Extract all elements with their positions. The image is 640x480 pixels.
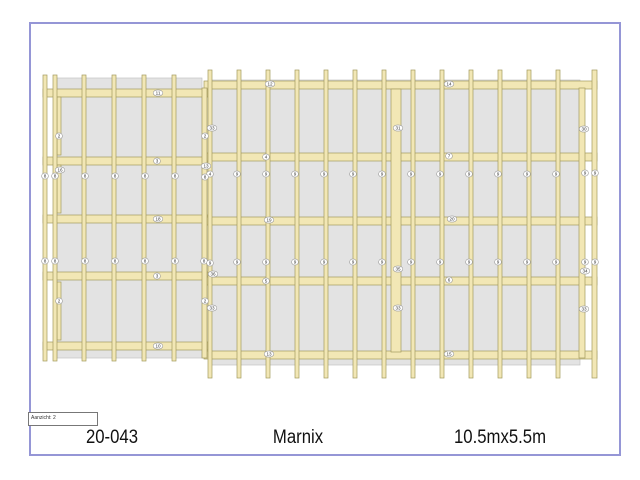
stud [353, 70, 357, 378]
rail [43, 89, 208, 97]
part-label: 9 [323, 260, 326, 265]
part-label: 4 [265, 155, 268, 160]
view-label: Aanzicht: 2 [31, 415, 56, 421]
part-label: 9 [410, 172, 413, 177]
part-label: 8 [203, 259, 206, 264]
part-label: 9 [236, 172, 239, 177]
part-label: 9 [468, 172, 471, 177]
part-label: 9 [294, 172, 297, 177]
part-label: 16 [57, 168, 63, 173]
part-label: 9 [497, 172, 500, 177]
part-label: 33 [209, 306, 215, 311]
part-label: 5 [265, 279, 268, 284]
stud [112, 75, 116, 361]
timber-frame-drawing: 1131831021628888888888883321348893623312… [0, 0, 640, 480]
stud [411, 70, 415, 378]
stud [295, 70, 299, 378]
part-label: 13 [266, 352, 272, 357]
part-label: 8 [174, 259, 177, 264]
stud [324, 70, 328, 378]
part-label: 9 [352, 260, 355, 265]
part-label: 19 [266, 218, 272, 223]
part-label: 15 [446, 352, 452, 357]
project-name: Marnix [254, 427, 342, 449]
part-label: 8 [144, 174, 147, 179]
part-label: 9 [381, 172, 384, 177]
rail [43, 342, 208, 350]
part-label: 9 [265, 260, 268, 265]
part-label: 9 [526, 260, 529, 265]
stud [527, 70, 531, 378]
part-label: 3 [156, 274, 159, 279]
rail [43, 215, 208, 223]
stud [43, 75, 47, 361]
part-label: 33 [581, 307, 587, 312]
stud [266, 70, 270, 378]
part-label: 33 [209, 126, 215, 131]
part-label: 9 [526, 172, 529, 177]
part-label: 8 [174, 174, 177, 179]
stud [237, 70, 241, 378]
part-label: 9 [381, 260, 384, 265]
part-label: 14 [446, 82, 452, 87]
part-label: 9 [468, 260, 471, 265]
jack-stud [57, 97, 61, 155]
part-label: 9 [594, 260, 597, 265]
part-label: 8 [84, 174, 87, 179]
part-label: 36 [210, 272, 216, 277]
part-label: 8 [114, 259, 117, 264]
part-label: 8 [54, 259, 57, 264]
part-label: 4 [209, 172, 212, 177]
part-label: 8 [114, 174, 117, 179]
rail [204, 81, 597, 89]
part-label: 2 [204, 134, 207, 139]
part-label: 9 [352, 172, 355, 177]
part-label: 9 [594, 171, 597, 176]
project-number: 20-043 [68, 427, 156, 449]
part-label: 9 [236, 260, 239, 265]
part-label: 35 [395, 267, 401, 272]
jack-stud [57, 282, 61, 340]
dimensions-label: 10.5mx5.5m [454, 427, 542, 449]
part-label: 9 [555, 172, 558, 177]
rail [43, 272, 208, 280]
part-label: 20 [449, 217, 455, 222]
part-label: 6 [448, 278, 451, 283]
part-label: 11 [156, 91, 161, 96]
view-label-box: Aanzicht: 2 [28, 412, 98, 426]
part-label: 8 [204, 175, 207, 180]
part-label: 13 [203, 164, 209, 169]
stud [469, 70, 473, 378]
part-label: 30 [581, 127, 587, 132]
outer-stud [592, 70, 597, 378]
stud [556, 70, 560, 378]
part-label: 9 [439, 260, 442, 265]
part-label: 9 [209, 261, 212, 266]
stud [172, 75, 176, 361]
part-label: 8 [44, 259, 47, 264]
part-label: 8 [84, 259, 87, 264]
part-label: 8 [44, 174, 47, 179]
part-label: 8 [54, 174, 57, 179]
rail [43, 157, 208, 165]
part-label: 12 [267, 82, 273, 87]
part-label: 9 [439, 172, 442, 177]
drawing-page: 1131831021628888888888883321348893623312… [0, 0, 640, 480]
part-label: 9 [555, 260, 558, 265]
stud [440, 70, 444, 378]
stud [382, 70, 386, 378]
part-label: 8 [144, 259, 147, 264]
part-label: 7 [448, 154, 451, 159]
part-label: 3 [156, 159, 159, 164]
part-label: 2 [58, 134, 61, 139]
part-label: 9 [323, 172, 326, 177]
part-label: 9 [497, 260, 500, 265]
edge-stud [202, 88, 207, 358]
stud [82, 75, 86, 361]
part-label: 9 [294, 260, 297, 265]
part-label: 9 [265, 172, 268, 177]
part-label: 9 [410, 260, 413, 265]
part-label: 31 [395, 126, 401, 131]
stud [498, 70, 502, 378]
stud [142, 75, 146, 361]
part-label: 9 [584, 171, 587, 176]
part-label: 33 [395, 306, 401, 311]
part-label: 18 [155, 217, 161, 222]
part-label: 2 [58, 299, 61, 304]
part-label: 34 [582, 269, 588, 274]
stud [53, 75, 57, 361]
part-label: 9 [584, 260, 587, 265]
stud [208, 70, 212, 378]
part-label: 2 [204, 299, 207, 304]
part-label: 10 [155, 344, 161, 349]
